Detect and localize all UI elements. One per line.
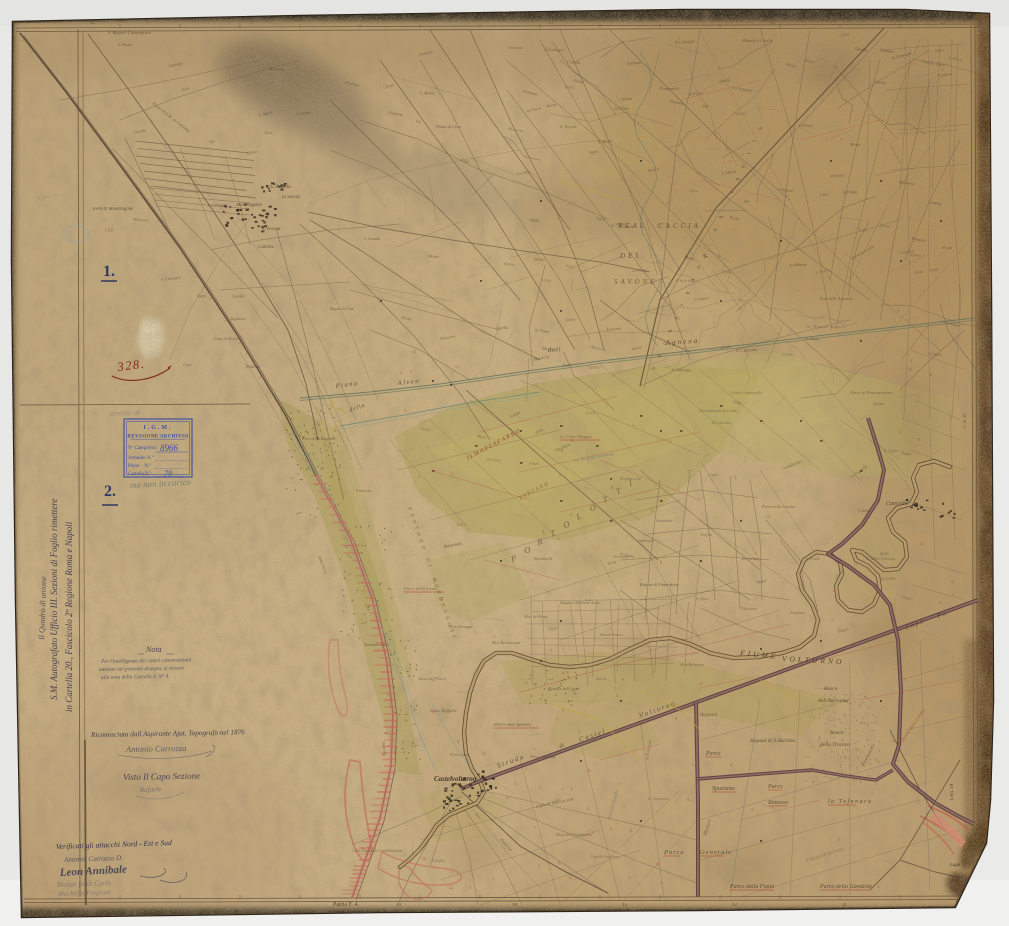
svg-text:la Piana: la Piana bbox=[615, 106, 629, 111]
svg-text:1.: 1. bbox=[958, 85, 961, 89]
svg-text:3.: 3. bbox=[534, 826, 537, 830]
svg-text:7.: 7. bbox=[441, 665, 444, 669]
svg-text:1.: 1. bbox=[699, 171, 702, 175]
svg-text:4.: 4. bbox=[845, 252, 848, 256]
svg-text:Starza: Starza bbox=[735, 110, 746, 116]
svg-text:la Piana: la Piana bbox=[632, 268, 646, 273]
svg-text:Torre: Torre bbox=[584, 597, 593, 602]
svg-text:7.: 7. bbox=[856, 276, 859, 280]
svg-text:7.: 7. bbox=[777, 237, 780, 241]
svg-text:1.: 1. bbox=[628, 876, 631, 880]
svg-text:1.: 1. bbox=[400, 371, 403, 375]
svg-text:11: 11 bbox=[842, 903, 847, 908]
svg-text:Sanglora di Fiume morto: Sanglora di Fiume morto bbox=[560, 600, 601, 605]
svg-text:9.: 9. bbox=[588, 769, 591, 773]
svg-text:Parco della Lenza: Parco della Lenza bbox=[403, 586, 438, 591]
svg-text:Torre: Torre bbox=[934, 47, 944, 53]
svg-text:la Piana: la Piana bbox=[798, 123, 812, 128]
svg-text:Pezza: Pezza bbox=[528, 461, 539, 466]
svg-text:13: 13 bbox=[396, 903, 402, 908]
svg-text:1.B.s Pineta di Castelvolturno: 1.B.s Pineta di Castelvolturno bbox=[352, 848, 403, 853]
svg-text:Corso: Corso bbox=[565, 317, 576, 323]
svg-text:12: 12 bbox=[422, 857, 426, 861]
svg-text:Parco: Parco bbox=[563, 84, 574, 89]
svg-text:1.: 1. bbox=[883, 138, 886, 142]
svg-text:7.: 7. bbox=[623, 805, 626, 809]
svg-text:4.: 4. bbox=[922, 44, 925, 48]
svg-text:3.: 3. bbox=[432, 679, 435, 683]
svg-text:3.: 3. bbox=[432, 710, 435, 714]
svg-text:Starza: Starza bbox=[596, 676, 607, 681]
svg-text:4.: 4. bbox=[514, 782, 517, 786]
svg-text:12: 12 bbox=[908, 368, 912, 372]
svg-text:12: 12 bbox=[920, 542, 924, 546]
svg-text:in Cartella 20., Fascicolo 2º: in Cartella 20., Fascicolo 2º Regione Ro… bbox=[64, 521, 74, 712]
svg-text:1.: 1. bbox=[636, 201, 639, 205]
svg-text:Malan fredi Carls: Malan fredi Carls bbox=[56, 878, 111, 889]
svg-text:Porcospina: Porcospina bbox=[449, 752, 469, 757]
svg-text:7.: 7. bbox=[953, 872, 956, 876]
svg-text:1.: 1. bbox=[404, 853, 407, 857]
svg-text:1.: 1. bbox=[696, 808, 699, 812]
svg-text:4.: 4. bbox=[730, 763, 733, 767]
svg-text:7.: 7. bbox=[871, 793, 874, 797]
svg-text:7.: 7. bbox=[616, 823, 619, 827]
svg-text:7.: 7. bbox=[809, 615, 812, 619]
svg-text:1.: 1. bbox=[901, 216, 904, 220]
svg-text:di Cancello: di Cancello bbox=[712, 420, 731, 425]
svg-text:Pezza: Pezza bbox=[873, 401, 884, 406]
svg-text:S.Sofia: S.Sofia bbox=[432, 858, 444, 863]
svg-text:Cannito: Cannito bbox=[258, 245, 275, 250]
svg-text:3.: 3. bbox=[751, 808, 754, 812]
svg-text:Grotte Campanelle: Grotte Campanelle bbox=[730, 390, 762, 395]
svg-text:9.: 9. bbox=[476, 813, 479, 817]
svg-text:Mas.Bevinacqua: Mas.Bevinacqua bbox=[491, 640, 520, 645]
svg-text:Cancello: Cancello bbox=[886, 501, 908, 507]
svg-text:1.: 1. bbox=[538, 864, 541, 868]
svg-text:Magnifico Casella: Magnifico Casella bbox=[741, 38, 773, 43]
svg-text:3.: 3. bbox=[939, 601, 942, 605]
svg-text:4.: 4. bbox=[739, 307, 742, 311]
svg-text:Via: Via bbox=[744, 199, 750, 204]
svg-text:12: 12 bbox=[857, 575, 861, 579]
svg-text:Mon.Bevineza: Mon.Bevineza bbox=[679, 662, 704, 667]
svg-text:1.: 1. bbox=[469, 823, 472, 827]
svg-text:15: 15 bbox=[622, 903, 628, 908]
svg-text:Pote delle 4 grande: Pote delle 4 grande bbox=[819, 296, 853, 301]
svg-text:l'Oscuano: l'Oscuano bbox=[740, 606, 757, 611]
svg-text:9.: 9. bbox=[550, 649, 553, 653]
svg-text:la Lenza: la Lenza bbox=[881, 575, 896, 581]
svg-text:7.: 7. bbox=[699, 689, 702, 693]
svg-text:3.: 3. bbox=[639, 578, 642, 582]
svg-text:3.: 3. bbox=[660, 881, 663, 885]
svg-text:3.: 3. bbox=[952, 593, 955, 597]
svg-text:Parco: Parco bbox=[663, 849, 685, 856]
svg-text:REVISIONE ARCHIVIO: REVISIONE ARCHIVIO bbox=[127, 435, 188, 440]
svg-text:Starza: Starza bbox=[534, 256, 545, 261]
svg-text:3.: 3. bbox=[587, 807, 590, 811]
svg-text:7.: 7. bbox=[811, 67, 814, 71]
svg-text:Treglia: Treglia bbox=[700, 532, 712, 537]
svg-text:1.: 1. bbox=[610, 827, 613, 831]
svg-text:7.: 7. bbox=[889, 224, 892, 228]
svg-text:Bagnara: Bagnara bbox=[700, 713, 718, 718]
svg-text:1.: 1. bbox=[493, 372, 496, 376]
svg-text:1.: 1. bbox=[103, 263, 115, 280]
svg-text:7.: 7. bbox=[480, 528, 483, 532]
svg-text:dell Aversana: dell Aversana bbox=[818, 698, 848, 704]
svg-text:Pescale: Pescale bbox=[245, 364, 260, 369]
svg-text:4.: 4. bbox=[404, 646, 407, 650]
svg-text:Torre: Torre bbox=[264, 130, 273, 135]
svg-text:S. Limato: S. Limato bbox=[364, 236, 380, 241]
svg-text:7.: 7. bbox=[426, 446, 429, 450]
svg-text:4.: 4. bbox=[578, 730, 581, 734]
svg-text:Franzese: Franzese bbox=[355, 488, 371, 493]
svg-text:la Tofanara: la Tofanara bbox=[648, 796, 670, 801]
svg-text:9.: 9. bbox=[410, 370, 413, 374]
svg-text:Lago: Lago bbox=[949, 863, 961, 868]
svg-text:1.: 1. bbox=[692, 763, 695, 767]
svg-text:1.: 1. bbox=[705, 754, 708, 758]
svg-text:3.: 3. bbox=[570, 513, 573, 517]
svg-text:9.: 9. bbox=[630, 829, 633, 833]
svg-text:12: 12 bbox=[505, 796, 509, 800]
svg-text:anesso al: anesso al bbox=[110, 407, 141, 418]
svg-text:1.: 1. bbox=[404, 409, 407, 413]
svg-text:Fermamento di Corde: Fermamento di Corde bbox=[699, 408, 737, 413]
svg-text:12: 12 bbox=[699, 682, 703, 686]
svg-text:12: 12 bbox=[524, 681, 528, 685]
svg-text:8966: 8966 bbox=[160, 443, 179, 453]
svg-text:7.: 7. bbox=[797, 289, 800, 293]
svg-text:1.: 1. bbox=[888, 46, 891, 50]
svg-text:Mass.del Prendipasto: Mass.del Prendipasto bbox=[555, 832, 592, 837]
svg-text:13: 13 bbox=[548, 21, 554, 26]
svg-text:12: 12 bbox=[656, 863, 660, 867]
svg-text:1.: 1. bbox=[821, 315, 824, 319]
svg-text:15: 15 bbox=[90, 21, 96, 26]
svg-text:L.: L. bbox=[67, 231, 74, 240]
svg-text:7.: 7. bbox=[621, 179, 624, 183]
svg-text:Antonio Carrozza: Antonio Carrozza bbox=[125, 743, 187, 754]
svg-text:Piccoli: Piccoli bbox=[675, 278, 696, 283]
svg-text:10: 10 bbox=[940, 21, 946, 26]
svg-text:Monte: Monte bbox=[849, 141, 861, 147]
svg-text:7.: 7. bbox=[741, 153, 744, 157]
svg-text:7.: 7. bbox=[923, 253, 926, 257]
svg-text:4.: 4. bbox=[569, 876, 572, 880]
svg-text:4.: 4. bbox=[909, 216, 912, 220]
svg-text:Bosco: Bosco bbox=[830, 730, 844, 736]
svg-text:7.: 7. bbox=[531, 579, 534, 583]
svg-text:9.: 9. bbox=[382, 753, 385, 757]
svg-text:Parco dalla Piana: Parco dalla Piana bbox=[729, 884, 774, 890]
svg-text:Mondragone: Mondragone bbox=[235, 203, 263, 208]
svg-text:12: 12 bbox=[534, 383, 538, 387]
svg-text:SAVONE: SAVONE bbox=[614, 278, 658, 286]
svg-text:Pianura dell Lago: Pianura dell Lago bbox=[547, 686, 579, 691]
svg-text:le Castagne: le Castagne bbox=[671, 367, 691, 373]
svg-text:4.: 4. bbox=[729, 160, 732, 164]
svg-text:9.: 9. bbox=[571, 439, 574, 443]
svg-text:Generale: Generale bbox=[700, 849, 732, 856]
svg-text:I.G.M.: I.G.M. bbox=[143, 425, 172, 431]
svg-text:3.: 3. bbox=[539, 786, 542, 790]
svg-text:1.: 1. bbox=[650, 255, 653, 259]
svg-text:7.: 7. bbox=[904, 678, 907, 682]
svg-text:7.: 7. bbox=[670, 713, 673, 717]
svg-text:1.: 1. bbox=[839, 239, 842, 243]
svg-text:4.: 4. bbox=[570, 787, 573, 791]
svg-text:Visto Il Capo Sezione: Visto Il Capo Sezione bbox=[123, 771, 200, 782]
svg-text:Arsadina: Arsadina bbox=[655, 518, 673, 523]
svg-text:3.: 3. bbox=[831, 618, 834, 622]
svg-text:Regione di Fiume morto: Regione di Fiume morto bbox=[639, 582, 679, 587]
svg-text:7.: 7. bbox=[409, 667, 412, 671]
svg-text:9.: 9. bbox=[611, 486, 614, 490]
svg-text:7.: 7. bbox=[890, 250, 893, 254]
svg-text:Torre Seragga: Torre Seragga bbox=[448, 624, 472, 629]
svg-text:4.: 4. bbox=[899, 696, 902, 700]
svg-text:C. S. 12: C. S. 12 bbox=[962, 413, 967, 428]
svg-text:Cese: Cese bbox=[183, 362, 191, 367]
svg-text:Parco della Gandella: Parco della Gandella bbox=[819, 884, 872, 890]
svg-text:9.: 9. bbox=[918, 438, 921, 442]
svg-text:9.: 9. bbox=[562, 709, 565, 713]
svg-text:4.: 4. bbox=[929, 373, 932, 377]
svg-text:7.: 7. bbox=[618, 783, 621, 787]
svg-text:Mas.di Punta: Mas.di Punta bbox=[599, 632, 623, 637]
svg-text:Masseria: Masseria bbox=[268, 66, 285, 72]
svg-text:S'. della Colonna: S'. della Colonna bbox=[866, 556, 895, 561]
svg-text:4.: 4. bbox=[562, 671, 565, 675]
svg-text:Parco di Passasparano: Parco di Passasparano bbox=[849, 390, 893, 395]
svg-text:1.: 1. bbox=[559, 474, 562, 478]
svg-text:Parco della Corona: Parco della Corona bbox=[761, 504, 795, 509]
svg-text:12: 12 bbox=[482, 752, 486, 756]
svg-text:7.: 7. bbox=[673, 512, 676, 516]
svg-text:Piano N.º: Piano N.º bbox=[128, 463, 151, 469]
svg-text:Starza: Starza bbox=[503, 261, 514, 267]
svg-text:7.: 7. bbox=[892, 740, 895, 744]
svg-text:1.: 1. bbox=[689, 47, 692, 51]
svg-text:9.: 9. bbox=[469, 886, 472, 890]
svg-text:4.: 4. bbox=[754, 552, 757, 556]
svg-text:Castelvolturno: Castelvolturno bbox=[434, 775, 477, 783]
svg-text:V. della: V. della bbox=[858, 508, 871, 513]
svg-text:le fosse: le fosse bbox=[696, 596, 709, 601]
svg-text:4.: 4. bbox=[941, 68, 944, 72]
svg-text:12: 12 bbox=[439, 598, 443, 602]
svg-text:4.: 4. bbox=[433, 580, 436, 584]
svg-text:Pezza: Pezza bbox=[420, 426, 431, 432]
svg-text:7.: 7. bbox=[561, 788, 564, 792]
svg-text:7.: 7. bbox=[840, 138, 843, 142]
svg-text:Pagliara chi: Pagliara chi bbox=[619, 476, 642, 481]
svg-text:4.: 4. bbox=[655, 148, 658, 152]
svg-text:7.: 7. bbox=[913, 63, 916, 67]
svg-text:4.: 4. bbox=[897, 309, 900, 313]
svg-text:Parco: Parco bbox=[767, 784, 782, 790]
svg-text:S. Maria: S. Maria bbox=[420, 90, 435, 95]
svg-text:la Piana: la Piana bbox=[805, 336, 820, 342]
svg-text:1.: 1. bbox=[612, 374, 615, 378]
svg-text:Bimosso: Bimosso bbox=[768, 800, 788, 806]
svg-text:Segaud di S.Martino: Segaud di S.Martino bbox=[750, 738, 796, 744]
svg-text:4.: 4. bbox=[632, 423, 635, 427]
svg-text:Pagliara: Pagliara bbox=[789, 610, 805, 615]
svg-text:S. Nicola: S. Nicola bbox=[262, 227, 281, 232]
svg-text:9.: 9. bbox=[660, 561, 663, 565]
svg-text:3.: 3. bbox=[91, 410, 97, 416]
svg-text:le Castagne: le Castagne bbox=[544, 47, 564, 53]
svg-text:7.: 7. bbox=[838, 839, 841, 843]
svg-text:9.: 9. bbox=[622, 678, 625, 682]
svg-text:4.: 4. bbox=[402, 740, 405, 744]
svg-text:Cese: Cese bbox=[820, 191, 829, 197]
svg-text:4.: 4. bbox=[877, 885, 880, 889]
svg-text:1.: 1. bbox=[685, 124, 688, 128]
svg-text:la Starza: la Starza bbox=[282, 195, 300, 200]
svg-text:Corte: Corte bbox=[586, 410, 596, 415]
svg-text:alla nota della Cartella F. N: alla nota della Cartella F. N° 4. bbox=[101, 673, 170, 681]
svg-text:1.: 1. bbox=[723, 161, 726, 165]
svg-text:le Fosse: le Fosse bbox=[806, 556, 820, 561]
svg-text:Lo Cento Maggio: Lo Cento Maggio bbox=[559, 434, 593, 439]
svg-text:1.: 1. bbox=[893, 565, 896, 569]
svg-text:Mass. Olimba: Mass. Olimba bbox=[529, 754, 556, 759]
svg-text:1.: 1. bbox=[790, 147, 793, 151]
svg-text:4.: 4. bbox=[951, 580, 954, 584]
svg-text:Rafaele: Rafaele bbox=[139, 785, 162, 794]
svg-text:CACCIA: CACCIA bbox=[658, 222, 701, 230]
svg-text:Pezza: Pezza bbox=[941, 245, 952, 250]
svg-text:3.: 3. bbox=[734, 476, 737, 480]
svg-text:della Trocara: della Trocara bbox=[820, 742, 850, 748]
svg-text:9.: 9. bbox=[675, 717, 678, 721]
svg-text:Tammarviello: Tammarviello bbox=[364, 642, 390, 647]
svg-text:7.: 7. bbox=[917, 397, 920, 401]
svg-text:3.: 3. bbox=[558, 861, 561, 865]
svg-text:7.: 7. bbox=[709, 311, 712, 315]
svg-text:la Grotta: la Grotta bbox=[742, 556, 759, 561]
svg-text:Parco dell Isolella: Parco dell Isolella bbox=[493, 723, 532, 728]
svg-text:1.: 1. bbox=[813, 716, 816, 720]
svg-text:Imbriani: Imbriani bbox=[637, 538, 654, 543]
svg-text:1.: 1. bbox=[732, 92, 735, 96]
svg-text:Torre di Mondragone: Torre di Mondragone bbox=[92, 207, 134, 212]
svg-text:Cupella Saghana: Cupella Saghana bbox=[590, 854, 619, 859]
svg-text:4.: 4. bbox=[542, 530, 545, 534]
svg-text:12: 12 bbox=[732, 903, 738, 908]
svg-text:2.: 2. bbox=[104, 483, 116, 500]
svg-text:3.: 3. bbox=[855, 562, 858, 566]
svg-text:Foce della Bagnara: Foce della Bagnara bbox=[301, 436, 336, 441]
svg-text:12: 12 bbox=[591, 830, 595, 834]
svg-text:Pezza: Pezza bbox=[900, 450, 911, 456]
svg-text:4.: 4. bbox=[899, 430, 902, 434]
svg-text:4.: 4. bbox=[678, 37, 681, 41]
svg-text:4.: 4. bbox=[825, 138, 828, 142]
svg-text:Casella: Casella bbox=[495, 325, 508, 330]
svg-text:Cese: Cese bbox=[709, 472, 718, 478]
svg-text:il Monte: il Monte bbox=[118, 42, 132, 47]
svg-text:Cartella N.º: Cartella N.º bbox=[128, 471, 152, 477]
svg-text:7.: 7. bbox=[863, 144, 866, 148]
svg-text:14: 14 bbox=[512, 903, 518, 908]
svg-text:Fontanelle: Fontanelle bbox=[659, 86, 680, 91]
svg-text:Via: Via bbox=[415, 119, 421, 125]
svg-text:12: 12 bbox=[832, 589, 836, 593]
svg-text:Casella: Casella bbox=[232, 293, 245, 298]
svg-text:12: 12 bbox=[412, 350, 416, 354]
svg-text:4.: 4. bbox=[718, 66, 721, 70]
svg-text:7.: 7. bbox=[673, 109, 676, 113]
svg-text:3.: 3. bbox=[616, 694, 619, 698]
svg-text:Vigna: Vigna bbox=[529, 217, 539, 222]
svg-text:1.: 1. bbox=[494, 635, 497, 639]
svg-text:Bosco: Bosco bbox=[824, 686, 838, 692]
svg-text:Nota: Nota bbox=[145, 645, 162, 654]
svg-text:9.: 9. bbox=[533, 747, 536, 751]
svg-text:Corso: Corso bbox=[588, 364, 598, 369]
svg-text:1.: 1. bbox=[525, 767, 528, 771]
svg-text:Patria F. 4.: Patria F. 4. bbox=[333, 902, 359, 908]
svg-text:1.: 1. bbox=[651, 509, 654, 513]
svg-text:1.: 1. bbox=[614, 687, 617, 691]
svg-text:4.: 4. bbox=[457, 740, 460, 744]
svg-text:12: 12 bbox=[555, 798, 559, 802]
svg-text:Torre: Torre bbox=[936, 61, 946, 67]
svg-text:14: 14 bbox=[770, 21, 776, 26]
svg-text:19: 19 bbox=[100, 218, 106, 224]
svg-text:4.: 4. bbox=[718, 255, 721, 259]
svg-text:12: 12 bbox=[767, 515, 771, 519]
svg-text:Nº Categorico: Nº Categorico bbox=[128, 445, 157, 451]
svg-text:1.: 1. bbox=[822, 237, 825, 241]
svg-text:S.M. Autografato Ufficio III.: S.M. Autografato Ufficio III. Sezioni di… bbox=[49, 499, 59, 700]
svg-text:9.: 9. bbox=[687, 798, 690, 802]
svg-text:Borbotelli: Borbotelli bbox=[534, 556, 553, 561]
svg-text:Spuzzano: Spuzzano bbox=[712, 786, 735, 792]
svg-text:Casa di Bosco: Casa di Bosco bbox=[214, 336, 238, 341]
svg-text:Monte: Monte bbox=[427, 253, 439, 259]
svg-text:4.: 4. bbox=[517, 724, 520, 728]
svg-text:1.: 1. bbox=[402, 524, 405, 528]
svg-text:12: 12 bbox=[449, 886, 453, 890]
svg-text:la Piana: la Piana bbox=[842, 189, 856, 194]
svg-text:Corso: Corso bbox=[783, 351, 793, 356]
svg-text:7.: 7. bbox=[817, 74, 820, 78]
svg-text:Casella: Casella bbox=[567, 59, 580, 65]
svg-text:Bagno di Cani: Bagno di Cani bbox=[330, 306, 355, 311]
svg-text:Mar. de Ponte: Mar. de Ponte bbox=[523, 614, 548, 619]
svg-text:1.: 1. bbox=[590, 555, 593, 559]
svg-text:12: 12 bbox=[668, 440, 672, 444]
svg-text:Torre: Torre bbox=[197, 293, 206, 298]
svg-text:Fontana: Fontana bbox=[507, 45, 522, 50]
svg-text:la Tofanara: la Tofanara bbox=[828, 798, 872, 805]
svg-text:1°: 1° bbox=[250, 21, 255, 26]
svg-text:Torre: Torre bbox=[456, 521, 465, 526]
svg-text:le Castagne: le Castagne bbox=[207, 202, 227, 207]
svg-text:7.: 7. bbox=[882, 212, 885, 216]
svg-text:Cese: Cese bbox=[689, 188, 697, 193]
svg-text:1.: 1. bbox=[789, 69, 792, 73]
